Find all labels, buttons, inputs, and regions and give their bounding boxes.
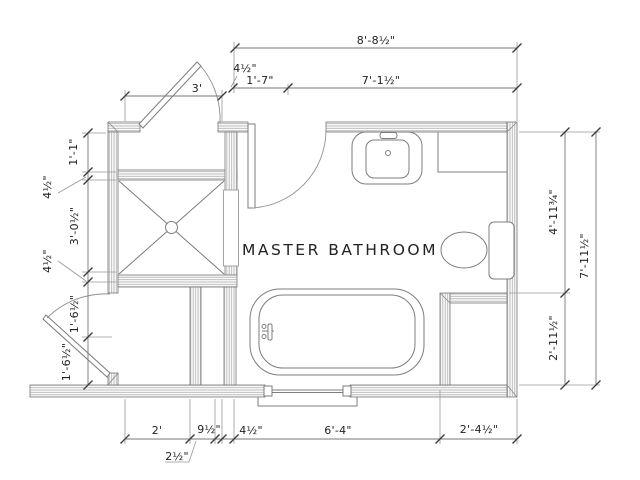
door-swing-arc — [252, 131, 327, 208]
wall-top-pier — [218, 122, 248, 132]
dim-left-4: 4½" — [41, 249, 54, 273]
wall-bottom-left — [30, 385, 265, 397]
wall-top-right — [326, 122, 507, 132]
wall-closet-top — [450, 293, 507, 303]
window-jamb-right — [343, 386, 351, 396]
dim-left-2: 4½" — [41, 175, 54, 199]
dim-right-overall: 7'-11½" — [578, 233, 591, 279]
shower — [119, 181, 239, 274]
floor-plan-drawing: 8'-8½" 4½" 1'-7" 7'-1½" 3' 1'-1" 4½" 3'-… — [0, 0, 640, 480]
dim-right-lower: 2'-11½" — [547, 315, 560, 361]
door-leaf — [248, 124, 255, 208]
wall-bottom-right — [350, 385, 507, 397]
toilet-bowl — [441, 232, 487, 268]
dim-bottom-6: 2'-4½" — [460, 423, 499, 436]
shower-drain — [166, 222, 178, 234]
toilet — [441, 222, 514, 279]
room-title: MASTER BATHROOM — [242, 241, 438, 259]
window-sill — [258, 397, 357, 406]
dim-left-5: 1'-6½" — [68, 295, 81, 334]
sink-drain — [386, 151, 391, 156]
dim-left-1: 1'-1" — [67, 138, 80, 166]
dim-top-right-seg: 7'-1½" — [362, 74, 401, 87]
dim-door-top: 3' — [192, 82, 203, 95]
shower-glass-door — [224, 190, 239, 266]
door-leaf — [139, 62, 201, 128]
dim-bottom-4: 4½" — [239, 424, 263, 437]
window-jamb-left — [264, 386, 272, 396]
dim-right-upper: 4'-11¾" — [547, 189, 560, 235]
wall-chase-left — [190, 287, 201, 385]
wall-left — [108, 132, 118, 293]
dim-bottom-2: 9½" — [197, 423, 221, 436]
dim-left-3: 3'-0½" — [68, 207, 81, 246]
tub-basin — [259, 295, 415, 368]
dim-top-overall: 8'-8½" — [357, 34, 396, 47]
window-bottom — [258, 386, 357, 406]
wall-closet-left — [440, 293, 450, 385]
door-top-left — [139, 62, 220, 128]
sink-faucet — [380, 133, 397, 139]
dim-left-6: 1'-6½" — [60, 343, 73, 382]
toilet-tank — [489, 222, 514, 279]
floor-plan-canvas: 8'-8½" 4½" 1'-7" 7'-1½" 3' 1'-1" 4½" 3'-… — [0, 0, 640, 480]
wall-chase-right — [224, 287, 236, 385]
dim-bottom-5: 6'-4" — [324, 424, 352, 437]
dim-bottom-1: 2' — [152, 424, 163, 437]
counter-edge — [438, 132, 507, 172]
wall-shower-top — [118, 170, 237, 180]
vanity-sink — [352, 132, 507, 184]
dim-bottom-3: 2½" — [165, 450, 189, 463]
wall-shower-bottom — [118, 275, 237, 287]
dim-top-left-seg: 1'-7" — [246, 74, 274, 87]
door-entry — [248, 124, 326, 208]
sink-basin — [366, 140, 409, 178]
bathtub — [250, 289, 424, 375]
